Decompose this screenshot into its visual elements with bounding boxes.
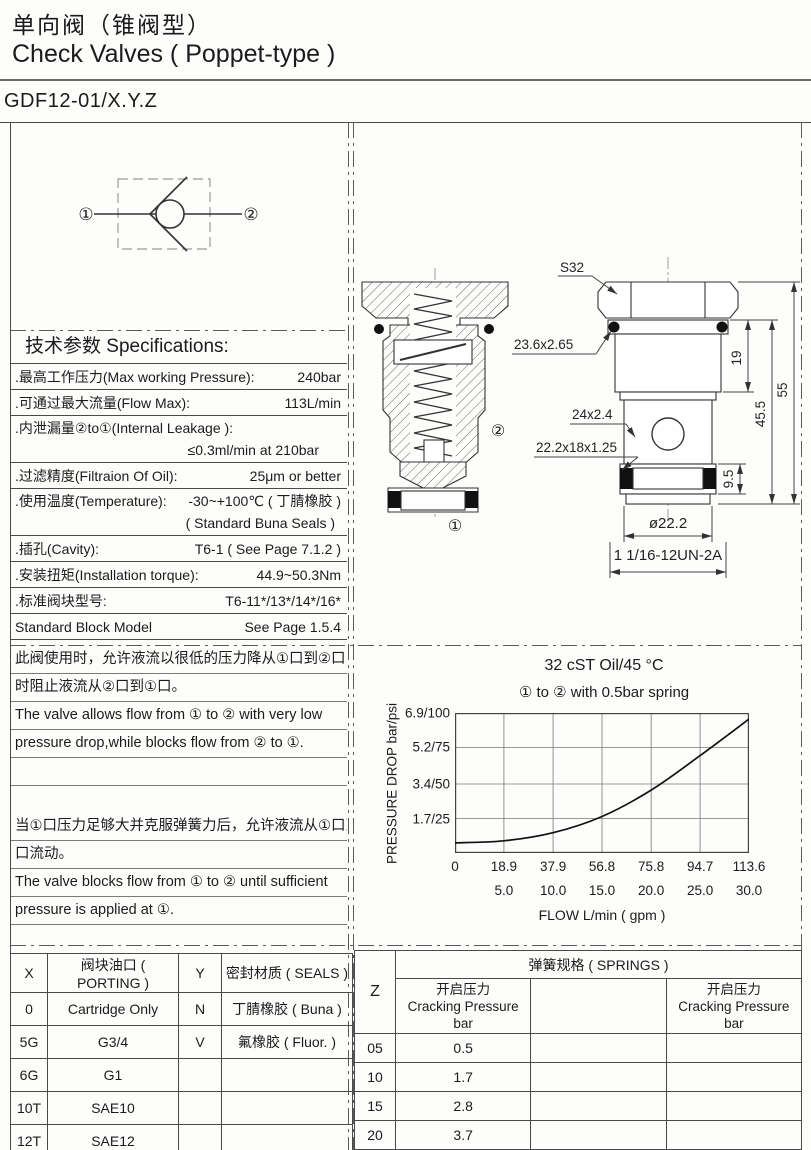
table-row: 5GG3/4V氟橡胶 ( Fluor. ) bbox=[11, 1026, 353, 1059]
y-tick-label: 3.4/50 bbox=[394, 777, 450, 792]
description-line: The valve blocks flow from ① to ② until … bbox=[11, 869, 347, 897]
symbol-port1-label: ① bbox=[78, 205, 93, 224]
table-row: 050.5 bbox=[355, 1034, 802, 1063]
springs-table: Z 弹簧规格 ( SPRINGS ) 开启压力 Cracking Pressur… bbox=[354, 950, 802, 1150]
table-row: 101.7 bbox=[355, 1063, 802, 1092]
table-row: 0Cartridge OnlyN丁腈橡胶 ( Buna ) bbox=[11, 993, 353, 1026]
poppet-ball bbox=[156, 200, 184, 228]
description-line: 此阀使用时，允许液流以很低的压力降从①口到②口，同 bbox=[11, 646, 347, 674]
table-row: 10TSAE10 bbox=[11, 1092, 353, 1125]
datasheet-page: 单向阀（锥阀型） Check Valves ( Poppet-type ) GD… bbox=[0, 0, 811, 1150]
table-row: 152.8 bbox=[355, 1092, 802, 1121]
check-valve-symbol: ① ② bbox=[10, 122, 348, 330]
x-tick-label-gpm: 15.0 bbox=[589, 883, 615, 898]
port2-label: ② bbox=[491, 423, 505, 440]
spec-row: .内泄漏量②to①(Internal Leakage ): ≤0.3ml/min… bbox=[11, 416, 347, 463]
spec-row: Standard Block ModelSee Page 1.5.4 bbox=[11, 614, 347, 640]
x-tick-label-lmin: 56.8 bbox=[589, 859, 615, 874]
y-tick-label: 6.9/100 bbox=[394, 706, 450, 721]
oring-left bbox=[374, 324, 384, 334]
chart-title: 32 cST Oil/45 °C bbox=[414, 657, 794, 675]
spec-row: .最高工作压力(Max working Pressure):240bar bbox=[11, 364, 347, 390]
table-header-row: Z 弹簧规格 ( SPRINGS ) bbox=[355, 951, 802, 979]
seal-size-label: 22.2x18x1.25 bbox=[536, 440, 617, 455]
y-tick-label: 5.2/75 bbox=[394, 740, 450, 755]
dim-45-5-label: 45.5 bbox=[753, 401, 768, 427]
function-description: 此阀使用时，允许液流以很低的压力降从①口到②口，同 时阻止液流从②口到①口。 T… bbox=[11, 646, 347, 952]
description-line: 当①口压力足够大并克服弹簧力后，允许液流从①口到② bbox=[11, 813, 347, 841]
model-code: GDF12-01/X.Y.Z bbox=[4, 90, 157, 113]
table-row: 12TSAE12 bbox=[11, 1125, 353, 1150]
specifications-table: 技术参数 Specifications: .最高工作压力(Max working… bbox=[11, 331, 347, 640]
spec-row: .标准阀块型号:T6-11*/13*/14*/16* bbox=[11, 588, 347, 614]
x-tick-label-lmin: 18.9 bbox=[491, 859, 517, 874]
description-line: 口流动。 bbox=[11, 841, 347, 869]
valve-drawings: ① ② S32 23.6x2.65 bbox=[354, 122, 803, 645]
port1-label: ① bbox=[448, 518, 462, 535]
dim-19-label: 19 bbox=[729, 350, 744, 365]
external-view bbox=[598, 257, 738, 522]
table-row: 6GG1 bbox=[11, 1059, 353, 1092]
description-line bbox=[11, 758, 347, 786]
top-oring bbox=[609, 322, 620, 333]
description-line: pressure drop,while blocks flow from ② t… bbox=[11, 730, 347, 758]
spec-row: .使用温度(Temperature):-30~+100℃ ( 丁腈橡胶 ) ( … bbox=[11, 489, 347, 536]
x-tick-label-lmin: 37.9 bbox=[540, 859, 566, 874]
thread-label: 1 1/16-12UN-2A bbox=[614, 547, 722, 564]
description-line: 时阻止液流从②口到①口。 bbox=[11, 674, 347, 702]
x-tick-label-gpm: 25.0 bbox=[687, 883, 713, 898]
spec-row: .过滤精度(Filtraion Of Oil):25μm or better bbox=[11, 463, 347, 489]
x-tick-label-gpm: 30.0 bbox=[736, 883, 762, 898]
y-tick-label: 1.7/25 bbox=[394, 811, 450, 826]
oring-right bbox=[484, 324, 494, 334]
side-port-hole bbox=[652, 418, 684, 450]
spec-row: .安装扭矩(Installation torque):44.9~50.3Nm bbox=[11, 562, 347, 588]
page-title-english: Check Valves ( Poppet-type ) bbox=[12, 40, 335, 69]
description-line: The valve allows flow from ① to ② with v… bbox=[11, 702, 347, 730]
table-row: 203.7 bbox=[355, 1121, 802, 1150]
x-tick-label-lmin: 94.7 bbox=[687, 859, 713, 874]
description-line: pressure is applied at ①. bbox=[11, 897, 347, 925]
chart-plot-area bbox=[455, 713, 749, 853]
porting-seals-table: X 阀块油口 ( PORTING ) Y 密封材质 ( SEALS ) 0Car… bbox=[10, 953, 353, 1150]
table-header-row: X 阀块油口 ( PORTING ) Y 密封材质 ( SEALS ) bbox=[11, 954, 353, 993]
spec-heading: 技术参数 Specifications: bbox=[11, 331, 347, 364]
x-tick-label-lmin: 0 bbox=[451, 859, 459, 874]
table-subheader-row: 开启压力 Cracking Pressure bar 开启压力 Cracking… bbox=[355, 979, 802, 1034]
x-tick-label-gpm: 5.0 bbox=[495, 883, 514, 898]
diameter-label: ø22.2 bbox=[649, 515, 687, 532]
description-line bbox=[11, 786, 347, 813]
pressure-drop-chart: 32 cST Oil/45 °C ① to ② with 0.5bar spri… bbox=[354, 645, 802, 945]
cutaway-view: ① ② bbox=[362, 268, 508, 535]
spec-row: .插孔(Cavity):T6-1 ( See Page 7.1.2 ) bbox=[11, 536, 347, 562]
page-title-chinese: 单向阀（锥阀型） bbox=[12, 6, 212, 40]
dim-9-5-label: 9.5 bbox=[721, 470, 736, 489]
symbol-port2-label: ② bbox=[243, 205, 258, 224]
oring-size-label: 23.6x2.65 bbox=[514, 337, 573, 352]
chart-x-axis-label: FLOW L/min ( gpm ) bbox=[455, 907, 749, 923]
x-tick-label-lmin: 75.8 bbox=[638, 859, 664, 874]
header-divider bbox=[0, 79, 811, 81]
x-tick-label-lmin: 113.6 bbox=[733, 859, 766, 874]
x-tick-label-gpm: 20.0 bbox=[638, 883, 664, 898]
spec-row: .可通过最大流量(Flow Max):113L/min bbox=[11, 390, 347, 416]
x-tick-label-gpm: 10.0 bbox=[540, 883, 566, 898]
dim-55-label: 55 bbox=[775, 382, 790, 397]
hex-head bbox=[598, 282, 738, 318]
chart-subtitle: ① to ② with 0.5bar spring bbox=[414, 683, 794, 701]
wrench-size-label: S32 bbox=[560, 260, 584, 275]
description-line bbox=[11, 925, 347, 952]
top-oring bbox=[717, 322, 728, 333]
backup-ring-label: 24x2.4 bbox=[572, 407, 613, 422]
